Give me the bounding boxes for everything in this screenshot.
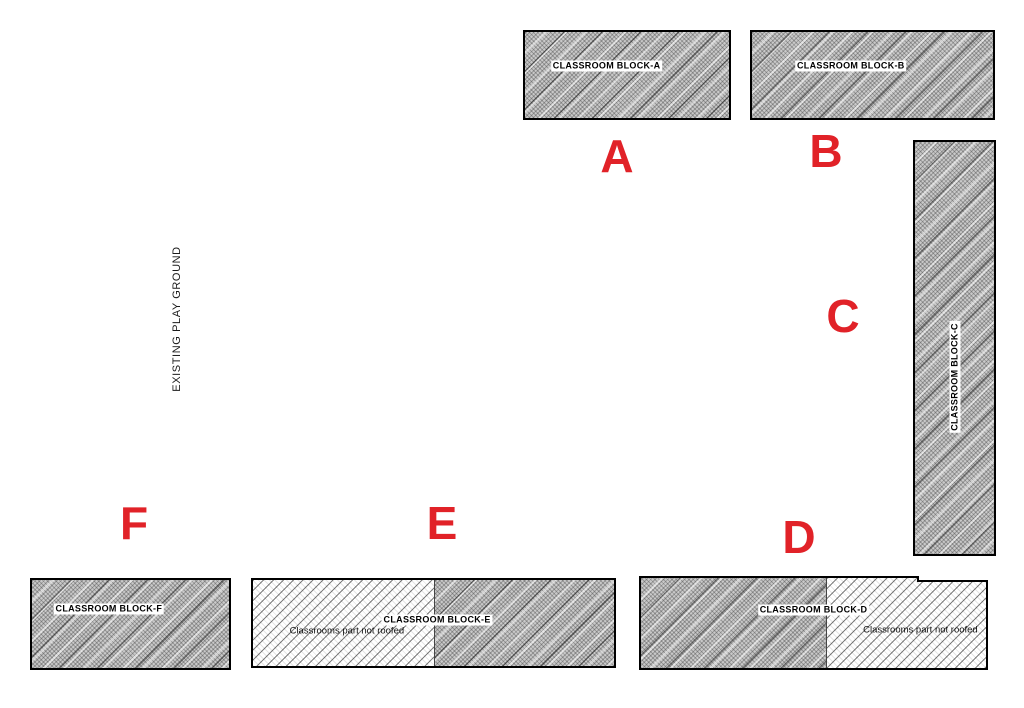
block-marker-f: F [120,500,148,546]
block-f-label: CLASSROOM BLOCK-F [54,604,165,615]
block-d-roofed-region [641,578,826,668]
classroom-block-a: CLASSROOM BLOCK-A [523,30,731,120]
classroom-block-c: CLASSROOM BLOCK-C [913,140,996,556]
classroom-block-f: CLASSROOM BLOCK-F [30,578,231,670]
block-b-label: CLASSROOM BLOCK-B [795,61,907,72]
playground-label: EXISTING PLAY GROUND [171,246,183,391]
block-c-label: CLASSROOM BLOCK-C [949,321,960,433]
classroom-block-b: CLASSROOM BLOCK-B [750,30,995,120]
block-e-unroofed-note: Classrooms part not roofed [290,626,405,636]
block-d-unroofed-region [826,578,986,668]
block-marker-b: B [809,128,842,174]
block-marker-d: D [782,514,815,560]
block-marker-c: C [826,293,859,339]
block-d-unroofed-note: Classrooms part not roofed [863,625,978,635]
site-plan-canvas: EXISTING PLAY GROUND CLASSROOM BLOCK-A C… [0,0,1024,708]
block-d-label: CLASSROOM BLOCK-D [758,605,870,616]
classroom-block-d: CLASSROOM BLOCK-D Classrooms part not ro… [639,576,988,670]
block-d-step-notch [917,576,988,582]
block-marker-a: A [600,133,633,179]
block-e-label: CLASSROOM BLOCK-E [382,614,493,625]
block-a-label: CLASSROOM BLOCK-A [551,60,663,71]
classroom-block-e: CLASSROOM BLOCK-E Classrooms part not ro… [251,578,616,668]
block-marker-e: E [427,500,458,546]
